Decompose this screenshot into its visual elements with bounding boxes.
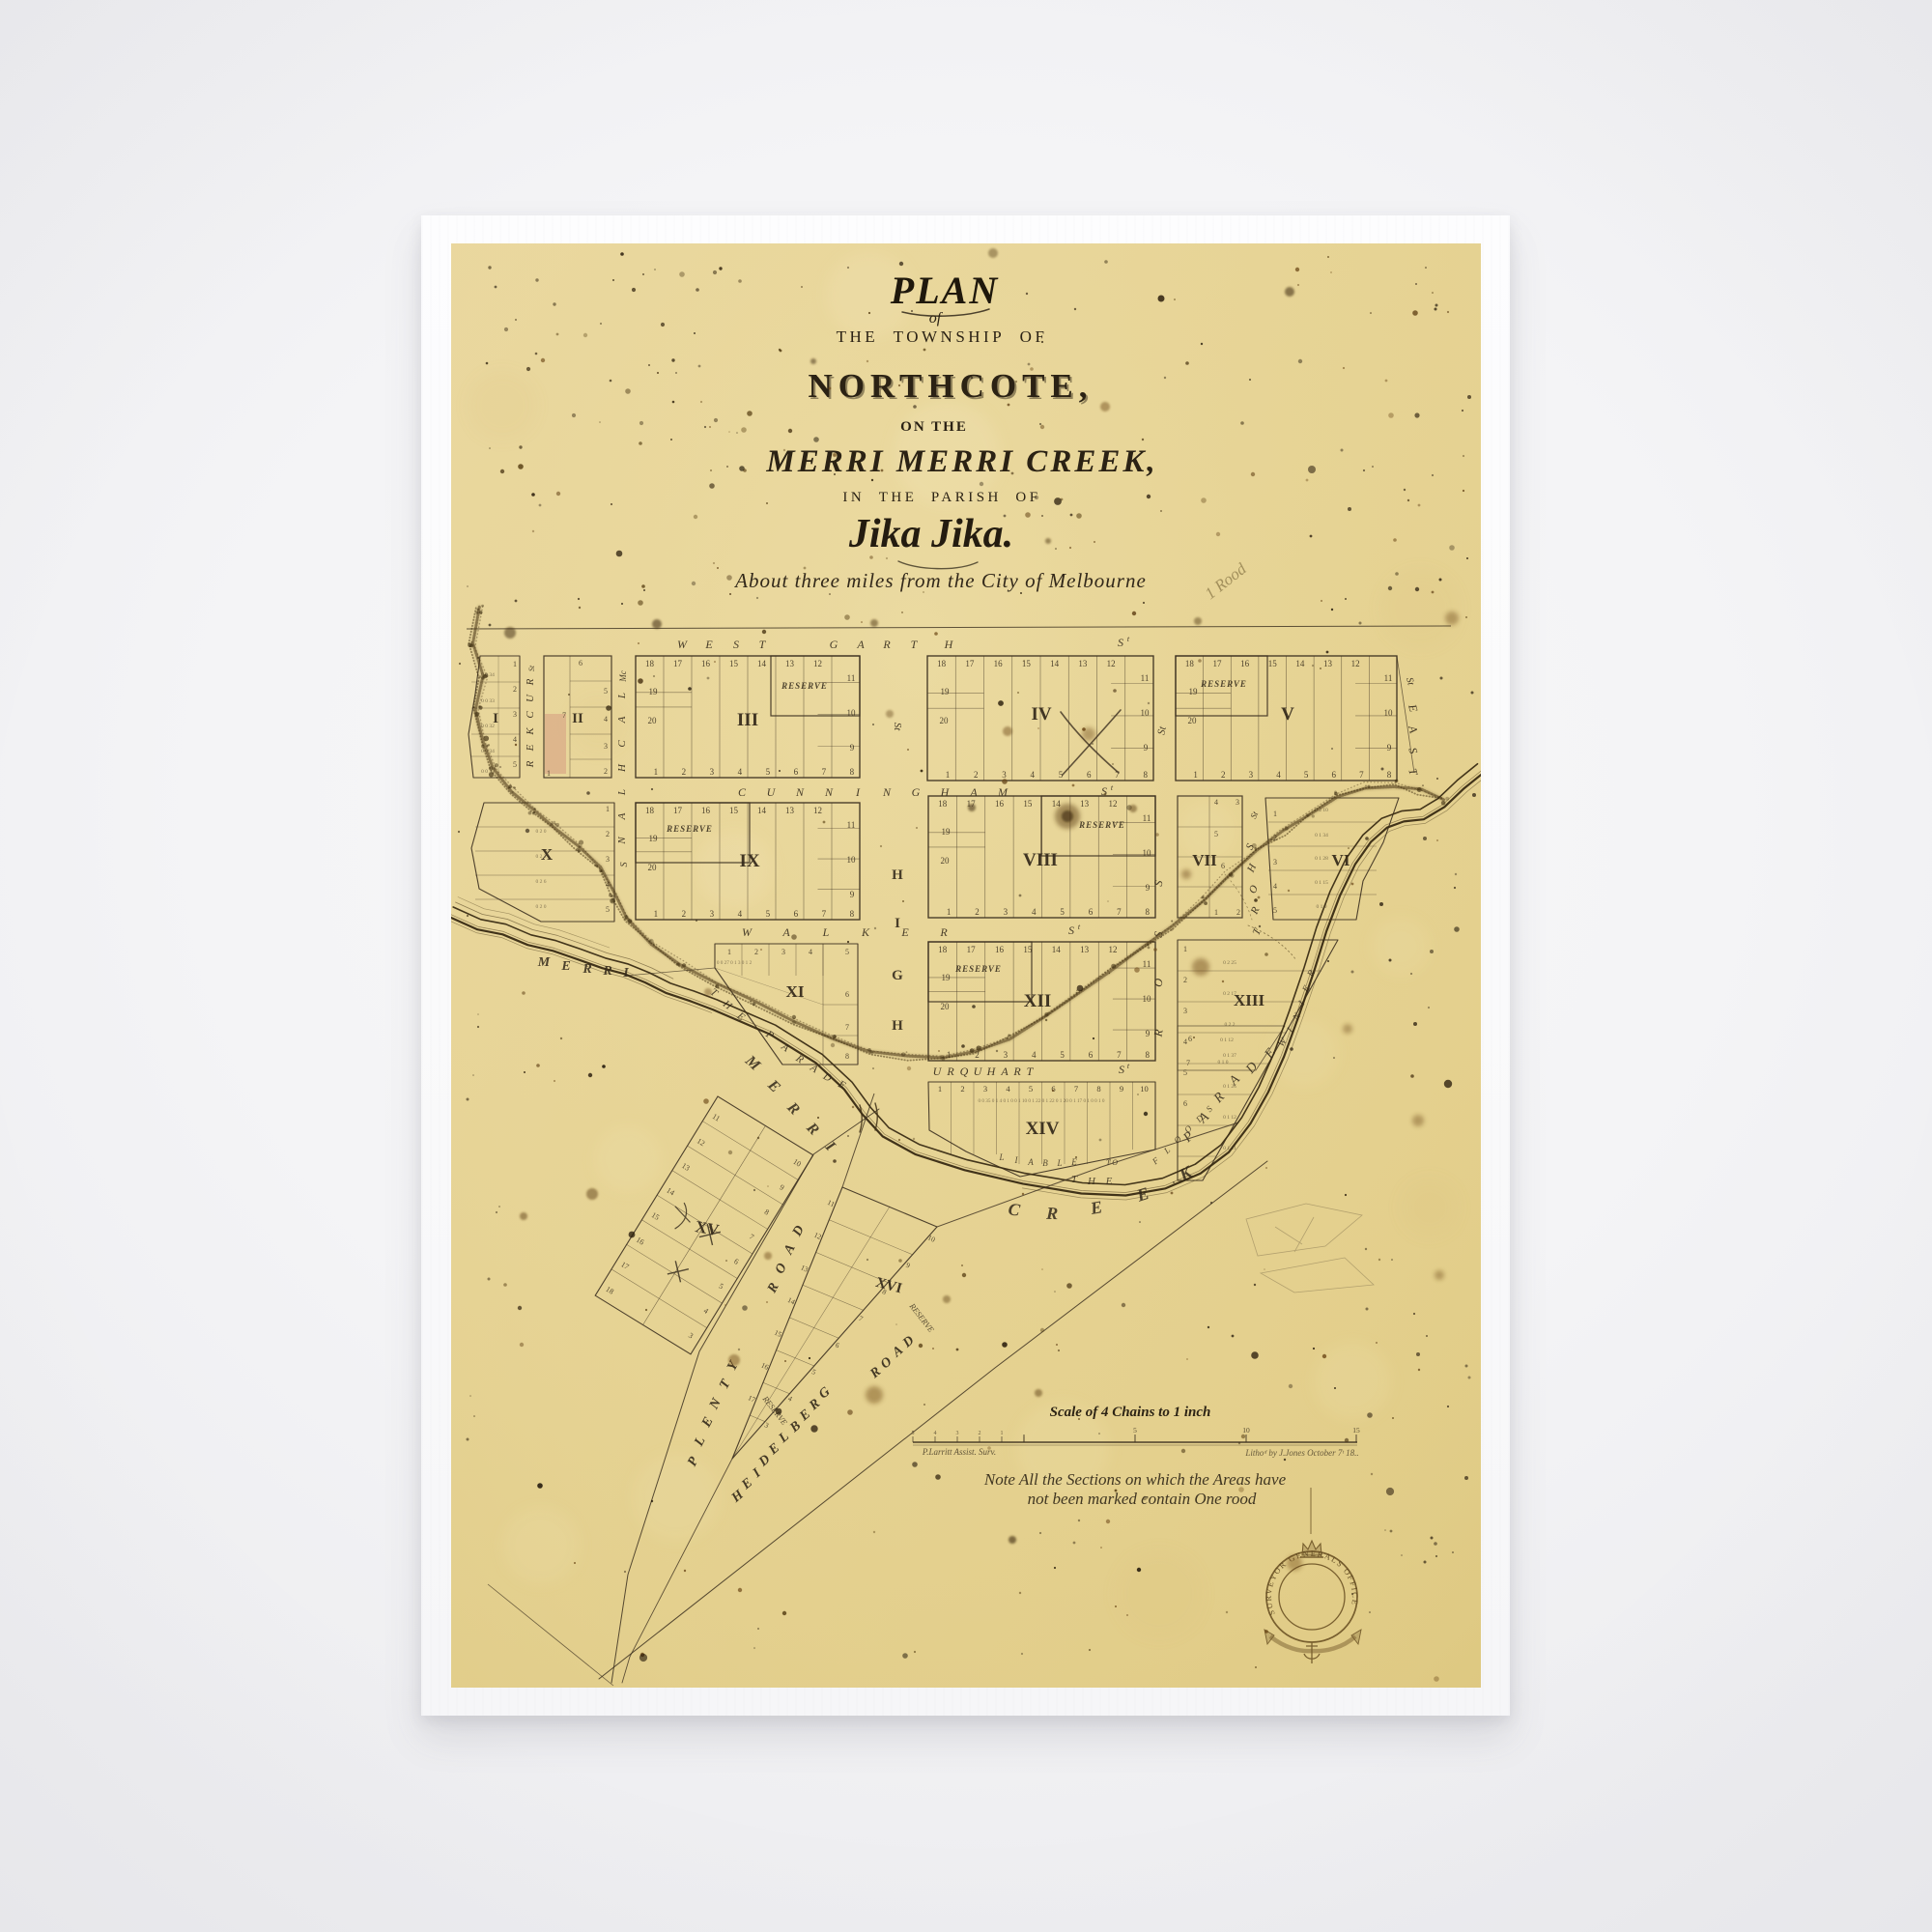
svg-text:8: 8 — [845, 1052, 849, 1061]
svg-text:5: 5 — [912, 1431, 915, 1436]
svg-text:9: 9 — [1146, 1029, 1151, 1038]
svg-text:R: R — [582, 962, 591, 977]
svg-text:8: 8 — [850, 909, 855, 919]
svg-text:1: 1 — [513, 660, 517, 668]
svg-text:13: 13 — [1080, 799, 1090, 809]
svg-text:N: N — [795, 785, 805, 799]
svg-text:RESERVE: RESERVE — [1200, 679, 1247, 689]
svg-text:2: 2 — [754, 948, 758, 956]
svg-text:0 1 37: 0 1 37 — [1223, 1053, 1236, 1059]
svg-text:S: S — [1068, 923, 1074, 937]
svg-text:3: 3 — [956, 1431, 959, 1436]
svg-text:X: X — [541, 845, 554, 864]
svg-text:7: 7 — [562, 711, 566, 720]
svg-text:M: M — [997, 785, 1009, 799]
svg-text:0 2 0: 0 2 0 — [536, 904, 547, 910]
svg-text:R: R — [1012, 1065, 1021, 1078]
svg-text:0 0 35 0 1 4 0 1 0 0 1 10 0: 0 0 35 0 1 4 0 1 0 0 1 10 0 1 22 0 1 22 … — [979, 1098, 1105, 1104]
svg-text:13: 13 — [1078, 659, 1088, 668]
svg-text:W: W — [742, 925, 753, 939]
svg-text:1: 1 — [606, 805, 610, 813]
svg-text:13: 13 — [785, 806, 795, 815]
svg-text:2: 2 — [975, 907, 980, 917]
svg-text:C: C — [525, 711, 536, 719]
svg-text:L: L — [616, 693, 628, 699]
svg-text:L: L — [998, 1152, 1004, 1162]
svg-text:20: 20 — [940, 716, 950, 725]
svg-text:18: 18 — [938, 945, 948, 954]
svg-text:6: 6 — [1221, 862, 1225, 870]
svg-text:1: 1 — [1273, 810, 1277, 818]
svg-text:19: 19 — [941, 687, 951, 696]
svg-text:I: I — [622, 966, 629, 980]
svg-text:3: 3 — [606, 855, 610, 864]
svg-text:not been marked contain One: not been marked contain One rood — [1028, 1490, 1257, 1508]
svg-text:ON THE: ON THE — [900, 419, 968, 435]
svg-text:3: 3 — [781, 948, 785, 956]
svg-text:H: H — [940, 785, 951, 799]
svg-text:R: R — [946, 1065, 954, 1078]
svg-text:II: II — [572, 711, 583, 726]
svg-text:8: 8 — [1144, 770, 1149, 780]
svg-text:Note All the Sections on whi: Note All the Sections on which the Areas… — [983, 1470, 1287, 1489]
svg-text:13: 13 — [1323, 659, 1333, 668]
svg-text:14: 14 — [757, 806, 767, 815]
svg-text:4: 4 — [1031, 770, 1036, 780]
svg-text:4: 4 — [1032, 1050, 1037, 1060]
svg-text:17: 17 — [965, 659, 975, 668]
svg-text:M: M — [537, 955, 551, 970]
svg-text:10: 10 — [1143, 994, 1152, 1004]
svg-text:G: G — [830, 638, 838, 651]
svg-text:TO: TO — [1106, 1158, 1120, 1167]
svg-text:Scale of 4 Chains to 1 inch: Scale of 4 Chains to 1 inch — [1050, 1405, 1211, 1420]
svg-text:E: E — [1070, 1157, 1077, 1167]
svg-text:3: 3 — [1183, 1007, 1187, 1015]
svg-text:St: St — [527, 665, 536, 671]
svg-text:0 1 28: 0 1 28 — [1315, 856, 1328, 862]
svg-text:RESERVE: RESERVE — [781, 681, 828, 691]
svg-text:11: 11 — [1143, 959, 1151, 969]
svg-text:13: 13 — [1080, 945, 1090, 954]
svg-text:19: 19 — [942, 973, 952, 982]
svg-text:5: 5 — [606, 905, 610, 914]
svg-text:10: 10 — [1141, 708, 1151, 718]
svg-text:1: 1 — [1193, 770, 1198, 780]
svg-text:11: 11 — [1384, 673, 1393, 683]
svg-text:5: 5 — [766, 909, 771, 919]
svg-text:A: A — [616, 812, 628, 820]
svg-text:12: 12 — [1108, 799, 1117, 809]
svg-text:K: K — [861, 925, 870, 939]
svg-text:10: 10 — [1384, 708, 1394, 718]
svg-text:4: 4 — [1276, 770, 1281, 780]
svg-text:2: 2 — [682, 909, 687, 919]
svg-text:13: 13 — [785, 659, 795, 668]
svg-text:14: 14 — [1295, 659, 1305, 668]
svg-text:Mc: Mc — [618, 670, 628, 683]
svg-text:12: 12 — [813, 806, 822, 815]
svg-text:1: 1 — [1183, 945, 1187, 953]
svg-text:2: 2 — [682, 767, 687, 777]
svg-text:4: 4 — [604, 715, 608, 724]
svg-text:RESERVE: RESERVE — [954, 964, 1002, 974]
svg-text:A: A — [781, 925, 790, 939]
svg-text:15: 15 — [1023, 945, 1033, 954]
svg-text:VI: VI — [1332, 851, 1350, 869]
svg-text:2: 2 — [606, 830, 610, 838]
svg-text:7: 7 — [822, 909, 827, 919]
svg-text:6: 6 — [579, 659, 582, 668]
svg-text:NORTHCOTE,: NORTHCOTE, — [808, 367, 1093, 405]
svg-text:C: C — [738, 785, 747, 799]
svg-text:A: A — [616, 716, 628, 724]
svg-text:14: 14 — [757, 659, 767, 668]
svg-text:A: A — [1027, 1157, 1034, 1167]
svg-text:12: 12 — [1108, 945, 1117, 954]
svg-text:S: S — [733, 638, 739, 651]
svg-text:2: 2 — [1221, 770, 1226, 780]
svg-text:0 1 0: 0 1 0 — [1218, 1060, 1229, 1065]
svg-text:H: H — [892, 1018, 903, 1034]
svg-text:5: 5 — [1029, 1084, 1033, 1094]
svg-text:B: B — [1042, 1158, 1048, 1168]
svg-text:7: 7 — [845, 1023, 849, 1032]
svg-text:H: H — [892, 867, 903, 883]
svg-text:XIV: XIV — [1026, 1119, 1060, 1139]
svg-text:0 1 34: 0 1 34 — [1315, 833, 1328, 838]
svg-text:H: H — [616, 763, 628, 773]
svg-text:XII: XII — [1024, 991, 1052, 1011]
svg-text:R: R — [525, 678, 536, 686]
svg-text:4: 4 — [1183, 1037, 1187, 1046]
svg-text:St: St — [892, 723, 903, 732]
svg-text:A: A — [1000, 1065, 1009, 1078]
svg-text:P.Larritt Assist. Surv.: P.Larritt Assist. Surv. — [922, 1447, 996, 1457]
svg-text:16: 16 — [994, 659, 1004, 668]
svg-text:0 0 33: 0 0 33 — [481, 698, 495, 704]
svg-text:L: L — [616, 789, 628, 796]
svg-text:E: E — [560, 959, 570, 974]
svg-text:U: U — [974, 1065, 983, 1078]
svg-text:4: 4 — [1273, 882, 1277, 891]
svg-text:E: E — [704, 638, 713, 651]
svg-text:2: 2 — [604, 767, 608, 776]
svg-text:6: 6 — [794, 767, 799, 777]
svg-text:5: 5 — [845, 948, 849, 956]
svg-text:5: 5 — [1133, 1426, 1137, 1435]
svg-text:18: 18 — [645, 659, 655, 668]
svg-text:S: S — [619, 863, 630, 867]
svg-text:3: 3 — [710, 767, 715, 777]
svg-text:7: 7 — [1074, 1084, 1078, 1094]
svg-text:10: 10 — [1140, 1084, 1149, 1094]
svg-text:0 1 12: 0 1 12 — [1220, 1037, 1234, 1043]
svg-text:E: E — [1105, 1176, 1113, 1187]
svg-text:4: 4 — [809, 948, 812, 956]
svg-text:E: E — [525, 744, 536, 752]
svg-text:W: W — [677, 638, 688, 651]
svg-text:15: 15 — [729, 659, 739, 668]
svg-text:9: 9 — [1144, 743, 1149, 753]
svg-text:THE TOWNSHIP OF: THE TOWNSHIP OF — [837, 327, 1048, 346]
svg-text:3: 3 — [604, 742, 608, 751]
svg-text:3: 3 — [710, 909, 715, 919]
svg-text:6: 6 — [1331, 770, 1336, 780]
svg-text:N: N — [616, 837, 628, 845]
svg-text:9: 9 — [1146, 883, 1151, 893]
svg-text:MERRI MERRI CREEK,: MERRI MERRI CREEK, — [765, 444, 1157, 479]
svg-text:Jika Jika.: Jika Jika. — [848, 512, 1013, 556]
svg-text:A: A — [856, 638, 865, 651]
svg-text:8: 8 — [1146, 1050, 1151, 1060]
svg-text:Lithoᵈ by J.Jones October 7ᵗ 1: Lithoᵈ by J.Jones October 7ᵗ 18.. — [1244, 1448, 1358, 1458]
svg-text:G: G — [892, 968, 903, 983]
svg-text:H: H — [944, 638, 954, 651]
svg-text:2: 2 — [513, 685, 517, 694]
svg-text:4: 4 — [1214, 798, 1218, 807]
svg-text:1: 1 — [547, 769, 551, 778]
svg-text:U: U — [767, 785, 777, 799]
svg-text:H: H — [986, 1065, 997, 1078]
svg-text:20: 20 — [648, 863, 658, 872]
svg-text:1: 1 — [946, 770, 951, 780]
svg-text:2: 2 — [960, 1084, 964, 1094]
svg-text:20: 20 — [941, 1002, 951, 1011]
svg-text:14: 14 — [1050, 659, 1060, 668]
svg-text:8: 8 — [1387, 770, 1392, 780]
svg-text:1: 1 — [947, 907, 952, 917]
svg-text:2: 2 — [974, 770, 979, 780]
svg-text:5: 5 — [1304, 770, 1309, 780]
svg-text:III: III — [737, 710, 758, 730]
svg-text:6: 6 — [1188, 1035, 1192, 1043]
svg-text:6: 6 — [1089, 907, 1094, 917]
svg-text:6: 6 — [794, 909, 799, 919]
svg-text:0 2 25: 0 2 25 — [1223, 960, 1236, 966]
svg-text:VII: VII — [1192, 851, 1217, 869]
svg-text:S: S — [1119, 1063, 1124, 1076]
svg-text:S: S — [1118, 636, 1123, 649]
svg-text:19: 19 — [1189, 687, 1199, 696]
svg-text:6: 6 — [1051, 1084, 1055, 1094]
svg-text:I: I — [493, 711, 498, 726]
svg-text:1: 1 — [654, 767, 659, 777]
svg-text:5: 5 — [513, 760, 517, 769]
svg-text:6: 6 — [1087, 770, 1092, 780]
svg-text:14: 14 — [1052, 945, 1062, 954]
svg-text:17: 17 — [673, 806, 683, 815]
svg-text:16: 16 — [1240, 659, 1250, 668]
svg-text:1: 1 — [654, 909, 659, 919]
svg-text:7: 7 — [1117, 1050, 1122, 1060]
svg-text:IX: IX — [739, 851, 759, 871]
svg-text:5: 5 — [1060, 907, 1065, 917]
svg-text:6: 6 — [1183, 1099, 1187, 1108]
svg-text:5: 5 — [1060, 1050, 1065, 1060]
svg-text:RESERVE: RESERVE — [1078, 820, 1125, 830]
svg-text:RESERVE: RESERVE — [666, 824, 713, 834]
svg-text:5: 5 — [1273, 906, 1277, 915]
svg-text:8: 8 — [1096, 1084, 1100, 1094]
svg-text:I: I — [895, 916, 900, 931]
svg-text:2: 2 — [979, 1431, 981, 1436]
svg-text:K: K — [525, 727, 536, 736]
svg-text:1: 1 — [938, 1084, 942, 1094]
svg-text:3: 3 — [1004, 1050, 1009, 1060]
svg-text:A: A — [969, 785, 978, 799]
svg-text:5: 5 — [1183, 1068, 1187, 1077]
svg-text:0 2 0: 0 2 0 — [536, 829, 547, 835]
svg-text:VIII: VIII — [1023, 850, 1058, 870]
svg-text:3: 3 — [1002, 770, 1007, 780]
svg-text:2: 2 — [1236, 908, 1240, 917]
svg-text:10: 10 — [1242, 1426, 1250, 1435]
svg-text:R: R — [525, 760, 536, 768]
svg-text:16: 16 — [701, 806, 711, 815]
svg-text:7: 7 — [1117, 907, 1122, 917]
svg-text:4: 4 — [513, 735, 517, 744]
svg-text:8: 8 — [1146, 907, 1151, 917]
svg-text:11: 11 — [1143, 813, 1151, 823]
svg-text:17: 17 — [967, 945, 977, 954]
svg-text:XIII: XIII — [1234, 991, 1265, 1009]
svg-text:7: 7 — [1186, 1059, 1190, 1067]
svg-text:12: 12 — [1107, 659, 1116, 668]
svg-text:3: 3 — [1273, 858, 1277, 867]
svg-text:19: 19 — [649, 687, 659, 696]
svg-text:7: 7 — [1359, 770, 1364, 780]
svg-text:16: 16 — [995, 799, 1005, 809]
svg-text:C: C — [616, 740, 628, 748]
svg-text:10: 10 — [847, 855, 857, 865]
svg-text:5: 5 — [1214, 830, 1218, 838]
svg-text:3: 3 — [1236, 798, 1239, 807]
svg-text:H: H — [1087, 1176, 1096, 1187]
svg-text:3: 3 — [983, 1084, 987, 1094]
svg-text:0 1 15: 0 1 15 — [1315, 880, 1328, 886]
svg-text:5: 5 — [766, 767, 771, 777]
svg-text:6: 6 — [845, 990, 849, 999]
svg-text:Q: Q — [960, 1065, 969, 1078]
svg-text:V: V — [1281, 704, 1294, 724]
svg-text:10: 10 — [1143, 848, 1152, 858]
svg-text:N: N — [824, 785, 834, 799]
svg-text:R: R — [602, 964, 611, 979]
svg-text:12: 12 — [1351, 659, 1360, 668]
svg-text:IV: IV — [1031, 704, 1051, 724]
svg-text:11: 11 — [847, 820, 856, 830]
svg-text:U: U — [525, 694, 536, 702]
svg-text:R: R — [1045, 1204, 1059, 1223]
svg-text:XI: XI — [786, 982, 805, 1001]
svg-text:PLAN: PLAN — [890, 269, 1000, 312]
svg-text:17: 17 — [673, 659, 683, 668]
svg-text:16: 16 — [701, 659, 711, 668]
svg-text:0 1 12: 0 1 12 — [1223, 1115, 1236, 1121]
svg-text:G: G — [912, 785, 921, 799]
svg-text:19: 19 — [942, 827, 952, 837]
svg-text:1: 1 — [1214, 908, 1218, 917]
svg-text:E: E — [900, 925, 909, 939]
svg-text:U: U — [933, 1065, 943, 1078]
svg-text:4: 4 — [1032, 907, 1037, 917]
svg-text:10: 10 — [847, 708, 857, 718]
svg-text:18: 18 — [645, 806, 655, 815]
svg-text:4: 4 — [738, 767, 743, 777]
svg-text:15: 15 — [1268, 659, 1278, 668]
svg-text:L: L — [1056, 1158, 1062, 1168]
svg-text:IN THE PARISH OF: IN THE PARISH OF — [842, 490, 1040, 505]
svg-text:6: 6 — [1089, 1050, 1094, 1060]
svg-text:N: N — [882, 785, 892, 799]
svg-text:3: 3 — [513, 710, 517, 719]
svg-text:15: 15 — [1023, 799, 1033, 809]
svg-text:7: 7 — [822, 767, 827, 777]
svg-text:R: R — [939, 925, 948, 939]
svg-text:9: 9 — [850, 890, 855, 899]
svg-text:1: 1 — [727, 948, 731, 956]
svg-text:20: 20 — [941, 856, 951, 866]
svg-text:4: 4 — [934, 1431, 937, 1436]
svg-text:20: 20 — [648, 716, 658, 725]
svg-text:9: 9 — [1120, 1084, 1123, 1094]
svg-text:About three miles from the Cit: About three miles from the City of Melbo… — [733, 569, 1147, 592]
svg-text:R: R — [882, 638, 891, 651]
svg-text:9: 9 — [850, 743, 855, 753]
svg-text:0 0 27 0 1 3 0 1 2: 0 0 27 0 1 3 0 1 2 — [717, 960, 753, 966]
svg-text:15: 15 — [729, 806, 739, 815]
svg-text:19: 19 — [649, 834, 659, 843]
svg-text:16: 16 — [995, 945, 1005, 954]
svg-text:18: 18 — [1185, 659, 1195, 668]
svg-text:9: 9 — [1387, 743, 1392, 753]
svg-text:15: 15 — [1352, 1426, 1360, 1435]
svg-text:17: 17 — [1212, 659, 1222, 668]
svg-text:2: 2 — [1183, 976, 1187, 984]
svg-text:3: 3 — [1004, 907, 1009, 917]
svg-text:12: 12 — [813, 659, 822, 668]
svg-text:0 2 2: 0 2 2 — [1225, 1022, 1236, 1028]
svg-text:18: 18 — [937, 659, 947, 668]
svg-text:4: 4 — [738, 909, 743, 919]
svg-text:11: 11 — [847, 673, 856, 683]
svg-text:11: 11 — [1141, 673, 1150, 683]
svg-text:8: 8 — [850, 767, 855, 777]
svg-text:L: L — [822, 925, 830, 939]
svg-text:3: 3 — [1249, 770, 1254, 780]
svg-text:0 2 6: 0 2 6 — [536, 879, 547, 885]
svg-text:1: 1 — [1001, 1431, 1004, 1436]
svg-text:20: 20 — [1188, 716, 1198, 725]
svg-text:18: 18 — [938, 799, 948, 809]
svg-text:5: 5 — [604, 687, 608, 696]
